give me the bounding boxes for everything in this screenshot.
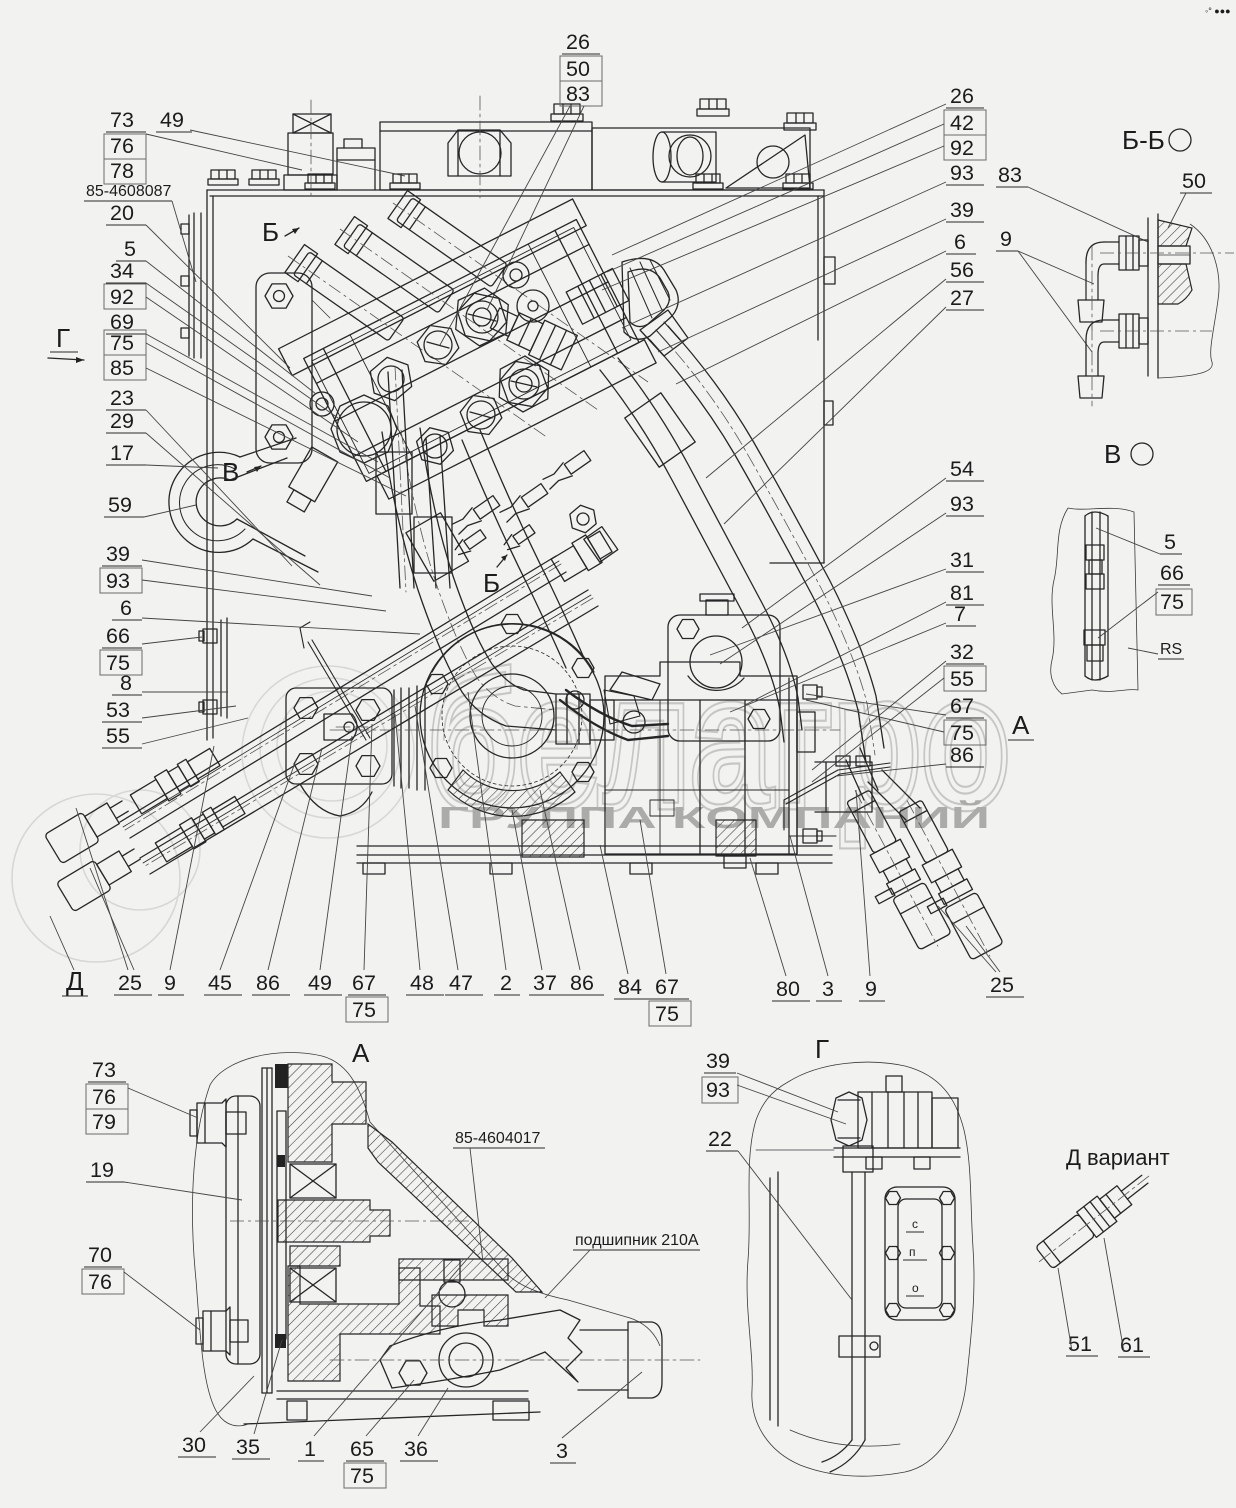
svg-text:с: с [912,1217,918,1231]
svg-text:67: 67 [950,694,974,718]
svg-text:В: В [222,457,239,487]
svg-text:39: 39 [706,1049,730,1073]
svg-text:54: 54 [950,457,974,481]
svg-text:25: 25 [118,971,142,995]
svg-text:Б: Б [483,568,500,598]
svg-text:85-4608087: 85-4608087 [86,183,172,200]
svg-text:Г: Г [56,323,70,353]
svg-text:5: 5 [1164,530,1176,554]
svg-text:29: 29 [110,409,134,433]
svg-text:23: 23 [110,386,134,410]
svg-text:92: 92 [110,285,134,309]
svg-text:86: 86 [950,743,974,767]
svg-text:19: 19 [90,1158,114,1182]
svg-text:49: 49 [160,108,184,132]
svg-text:48: 48 [410,971,434,995]
svg-text:32: 32 [950,640,974,664]
svg-text:93: 93 [706,1078,730,1102]
svg-text:67: 67 [352,971,376,995]
svg-text:25: 25 [990,973,1014,997]
svg-text:о: о [912,1281,919,1295]
svg-text:8: 8 [120,671,132,695]
svg-text:7: 7 [954,602,966,626]
svg-text:В: В [1104,439,1121,469]
svg-text:34: 34 [110,259,134,283]
svg-text:80: 80 [776,977,800,1001]
svg-text:56: 56 [950,258,974,282]
svg-text:79: 79 [92,1110,116,1134]
svg-text:53: 53 [106,698,130,722]
svg-text:93: 93 [950,161,974,185]
svg-text:70: 70 [88,1243,112,1267]
svg-text:73: 73 [92,1058,116,1082]
svg-text:75: 75 [1160,590,1184,614]
svg-text:п: п [909,1245,916,1259]
svg-text:65: 65 [350,1437,374,1461]
svg-text:31: 31 [950,548,974,572]
svg-text:55: 55 [950,667,974,691]
svg-text:37: 37 [533,971,557,995]
svg-text:А: А [1012,710,1030,740]
svg-text:49: 49 [308,971,332,995]
svg-text:66: 66 [1160,561,1184,585]
svg-text:22: 22 [708,1127,732,1151]
svg-text:75: 75 [110,331,134,355]
svg-text:Б-Б: Б-Б [1122,125,1165,155]
svg-text:92: 92 [950,136,974,160]
svg-text:78: 78 [110,159,134,183]
svg-text:26: 26 [950,84,974,108]
svg-text:2: 2 [500,971,512,995]
svg-text:35: 35 [236,1435,260,1459]
svg-text:27: 27 [950,286,974,310]
svg-text:3: 3 [822,977,834,1001]
svg-text:55: 55 [106,724,130,748]
svg-text:76: 76 [110,134,134,158]
svg-text:45: 45 [208,971,232,995]
svg-text:66: 66 [106,624,130,648]
svg-text:50: 50 [566,57,590,81]
svg-text:6: 6 [954,230,966,254]
svg-text:1: 1 [304,1437,316,1461]
svg-text:93: 93 [106,569,130,593]
svg-text:20: 20 [110,201,134,225]
svg-text:26: 26 [566,30,590,54]
svg-text:9: 9 [164,971,176,995]
svg-text:59: 59 [108,493,132,517]
svg-text:51: 51 [1068,1332,1092,1356]
svg-text:86: 86 [570,971,594,995]
svg-text:84: 84 [618,975,642,999]
svg-text:39: 39 [950,198,974,222]
svg-text:85-4604017: 85-4604017 [455,1130,541,1147]
svg-text:Г: Г [815,1034,829,1064]
svg-text:76: 76 [92,1085,116,1109]
svg-text:RS: RS [1160,641,1182,658]
svg-text:А: А [352,1038,370,1068]
svg-text:93: 93 [950,492,974,516]
svg-text:76: 76 [88,1270,112,1294]
svg-text:5: 5 [124,237,136,261]
svg-text:75: 75 [950,721,974,745]
svg-text:17: 17 [110,441,134,465]
svg-text:подшипник 210А: подшипник 210А [575,1232,699,1249]
svg-text:30: 30 [182,1433,206,1457]
svg-text:75: 75 [350,1464,374,1488]
svg-text:9: 9 [865,977,877,1001]
svg-text:39: 39 [106,542,130,566]
svg-text:3: 3 [556,1439,568,1463]
svg-text:Д: Д [66,966,84,996]
svg-text:◦° ●●●: ◦° ●●● [1205,6,1231,16]
svg-text:47: 47 [449,971,473,995]
svg-text:83: 83 [998,163,1022,187]
svg-text:9: 9 [1000,227,1012,251]
svg-text:61: 61 [1120,1333,1144,1357]
svg-text:85: 85 [110,356,134,380]
svg-text:75: 75 [352,998,376,1022]
svg-text:75: 75 [655,1002,679,1026]
svg-text:83: 83 [566,82,590,106]
svg-text:36: 36 [404,1437,428,1461]
svg-text:6: 6 [120,596,132,620]
svg-text:73: 73 [110,108,134,132]
svg-text:86: 86 [256,971,280,995]
svg-text:50: 50 [1182,169,1206,193]
svg-text:42: 42 [950,111,974,135]
svg-text:Д вариант: Д вариант [1066,1145,1170,1170]
svg-text:Б: Б [262,217,279,247]
svg-text:67: 67 [655,975,679,999]
